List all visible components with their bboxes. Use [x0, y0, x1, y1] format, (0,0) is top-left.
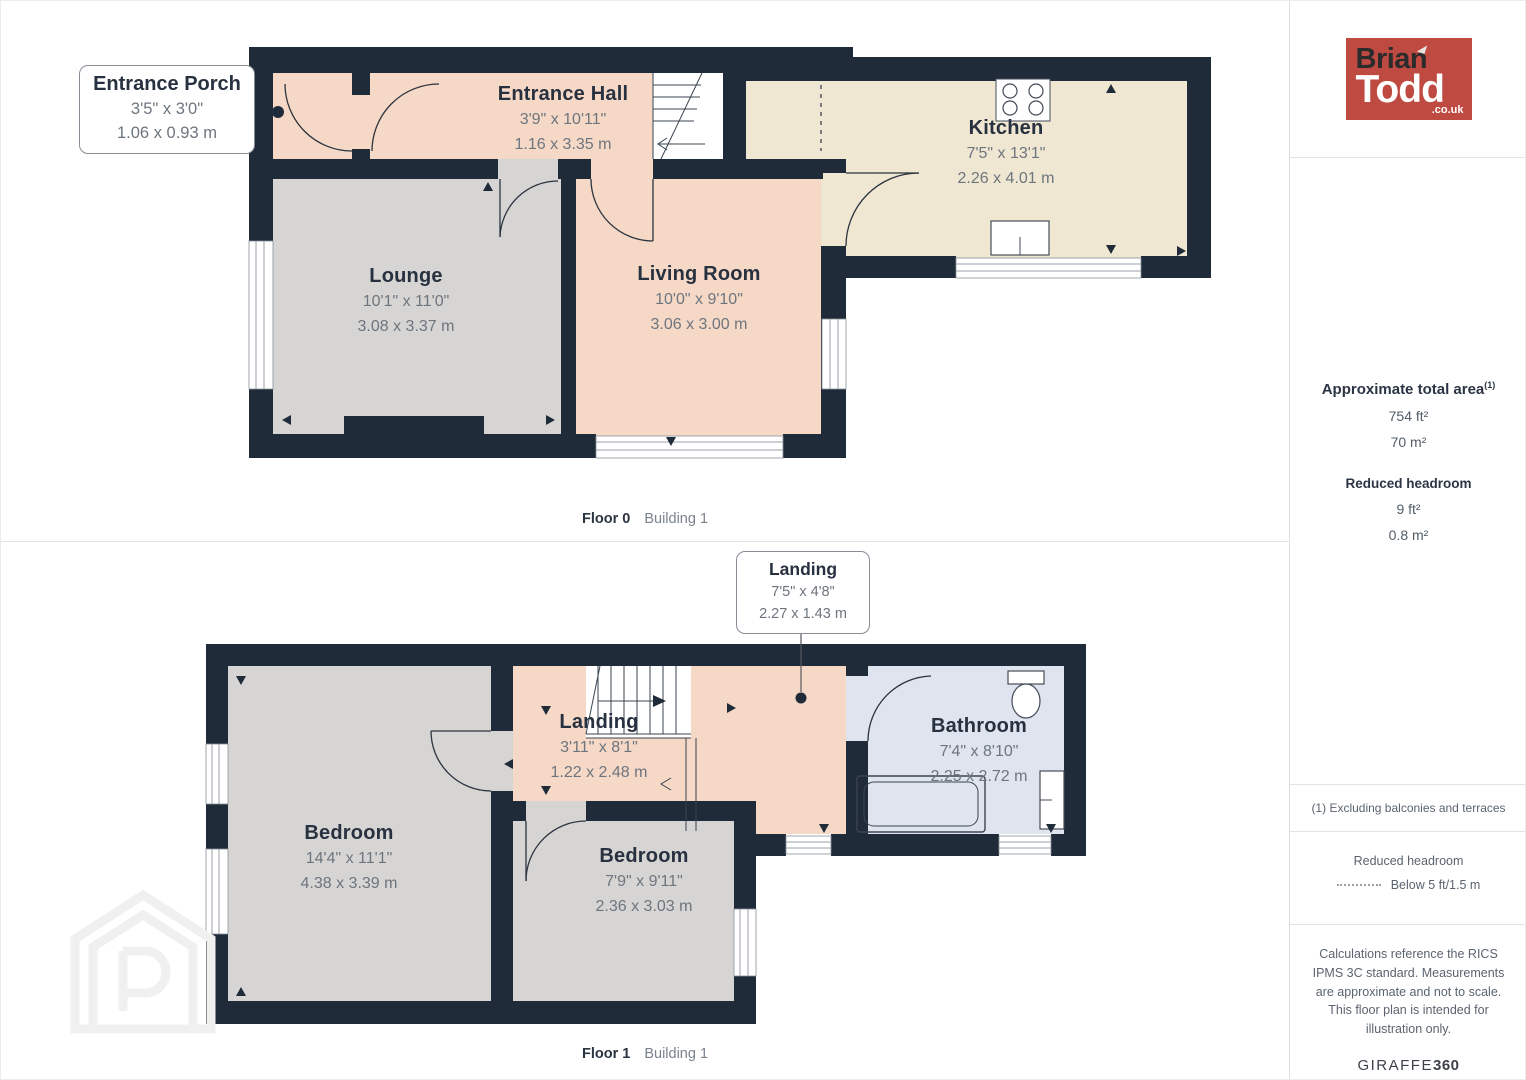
- floor-section-divider: [1, 541, 1289, 542]
- footnote-text: (1) Excluding balconies and terraces: [1311, 801, 1505, 815]
- reduced-headroom-m: 0.8 m²: [1290, 527, 1526, 543]
- disclaimer-text: Calculations reference the RICS IPMS 3C …: [1306, 945, 1511, 1039]
- landing-callout: Landing 7'5" x 4'8" 2.27 x 1.43 m: [736, 551, 870, 634]
- total-area-footnote-ref: (1): [1484, 380, 1495, 390]
- building-name: Building 1: [644, 1046, 708, 1062]
- dotted-line-icon: [1337, 884, 1381, 886]
- disclaimer-section: Calculations reference the RICS IPMS 3C …: [1290, 924, 1526, 1080]
- total-area-ft: 754 ft²: [1290, 408, 1526, 424]
- agency-logo-section: Brian Todd .co.uk: [1290, 1, 1526, 157]
- room-dims-ft: 7'5" x 4'8": [745, 583, 861, 602]
- floor1-room-fills: [228, 666, 1064, 1001]
- logo-suffix: .co.uk: [1432, 104, 1464, 116]
- total-area-title: Approximate total area(1): [1290, 380, 1526, 398]
- building-name: Building 1: [644, 511, 708, 527]
- floorplan-page: Entrance Porch 3'5" x 3'0" 1.06 x 0.93 m…: [0, 0, 1526, 1080]
- total-area-title-text: Approximate total area: [1322, 381, 1485, 398]
- room-dims-ft: 3'5" x 3'0": [88, 99, 246, 120]
- room-title: Entrance Porch: [88, 73, 246, 96]
- reduced-headroom-ft: 9 ft²: [1290, 501, 1526, 517]
- basin-icon: [1040, 771, 1064, 829]
- brand-suffix: 360: [1433, 1057, 1460, 1074]
- floor1-caption: Floor 1Building 1: [1, 1046, 1289, 1062]
- total-area-m: 70 m²: [1290, 434, 1526, 450]
- brand-name: GIRAFFE: [1357, 1057, 1433, 1074]
- room-dims-m: 2.27 x 1.43 m: [745, 605, 861, 624]
- info-sidebar: Brian Todd .co.uk Approximate total area…: [1289, 1, 1526, 1080]
- footnote-section: (1) Excluding balconies and terraces: [1290, 784, 1526, 831]
- stove-icon: [996, 79, 1050, 121]
- legend-section: Reduced headroom Below 5 ft/1.5 m: [1290, 831, 1526, 924]
- legend-label: Below 5 ft/1.5 m: [1391, 878, 1481, 892]
- floor-number: Floor 0: [582, 511, 630, 527]
- floor-number: Floor 1: [582, 1046, 630, 1062]
- room-title: Landing: [745, 559, 861, 580]
- plan-area: Entrance Porch 3'5" x 3'0" 1.06 x 0.93 m…: [1, 1, 1289, 1080]
- legend-row: Below 5 ft/1.5 m: [1290, 878, 1526, 892]
- legend-title: Reduced headroom: [1290, 854, 1526, 868]
- agency-logo: Brian Todd .co.uk: [1346, 38, 1472, 120]
- room-dims-m: 1.06 x 0.93 m: [88, 123, 246, 144]
- floor0-caption: Floor 0Building 1: [1, 511, 1289, 527]
- floor1-plan-svg: [1, 541, 1289, 1080]
- reduced-headroom-title: Reduced headroom: [1290, 476, 1526, 491]
- giraffe360-brand: GIRAFFE360: [1306, 1055, 1511, 1078]
- total-area-section: Approximate total area(1) 754 ft² 70 m² …: [1290, 157, 1526, 784]
- logo-line2: Todd: [1356, 72, 1462, 107]
- entrance-porch-callout: Entrance Porch 3'5" x 3'0" 1.06 x 0.93 m: [79, 65, 255, 154]
